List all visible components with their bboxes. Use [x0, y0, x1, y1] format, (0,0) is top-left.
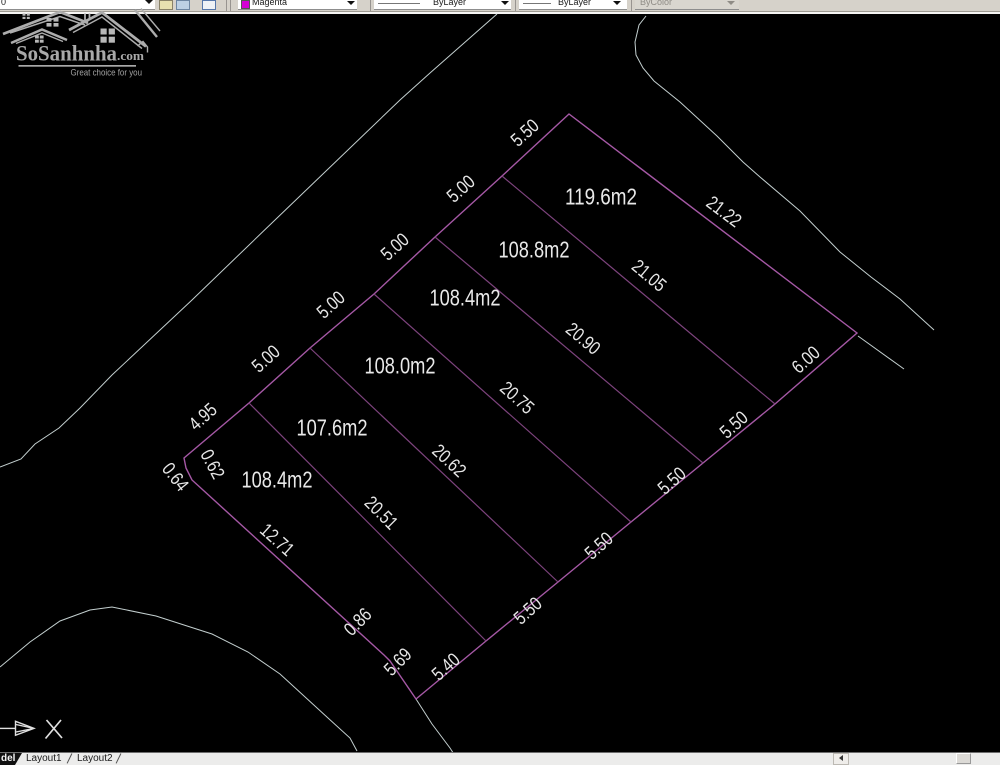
svg-text:.com: .com — [117, 48, 144, 63]
svg-text:Great choice for you: Great choice for you — [71, 67, 143, 78]
svg-text:108.4m2: 108.4m2 — [242, 467, 313, 493]
svg-text:108.4m2: 108.4m2 — [430, 285, 501, 311]
svg-text:108.8m2: 108.8m2 — [499, 237, 570, 263]
svg-text:107.6m2: 107.6m2 — [297, 415, 368, 441]
svg-text:108.0m2: 108.0m2 — [365, 353, 436, 379]
svg-text:SoSanhnha: SoSanhnha — [16, 41, 117, 66]
svg-text:119.6m2: 119.6m2 — [565, 184, 637, 210]
